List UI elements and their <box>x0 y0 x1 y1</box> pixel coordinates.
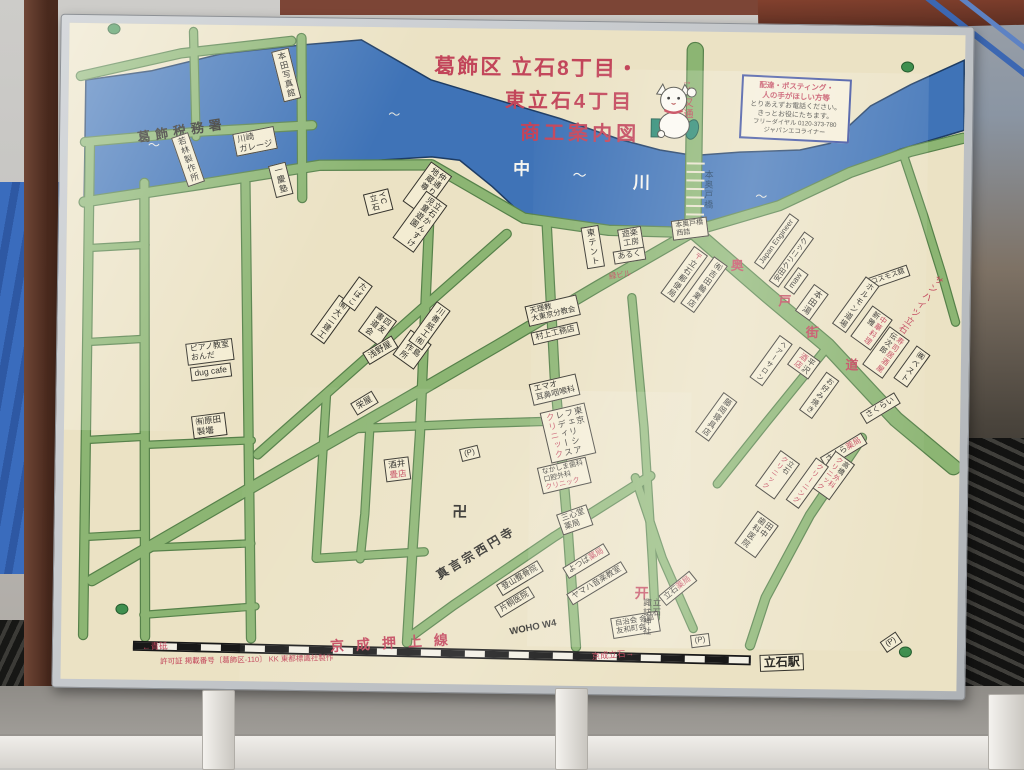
river-name: 中 <box>513 159 530 178</box>
bridge-name: 本奥戸橋 <box>703 170 714 210</box>
poi: YC 立石 <box>363 188 394 216</box>
parking-label: (P) <box>459 445 480 462</box>
poi: 田中 歯科医院 <box>734 511 778 559</box>
photo-background: 葛飾区 立石8丁目・東立石4丁目商工案内図中〜川〜〜〜〜本奥戸橋↑柴又通り奥戸街… <box>0 0 1024 768</box>
poi-sun-heights: サンハイツ立石 <box>896 273 945 336</box>
notice-box: 配達・ポスティング・ 人の手がほしい方等 とりあえずお電話ください。 きっとお役… <box>739 74 852 143</box>
poi-temple: 真言宗西円寺 <box>434 524 518 582</box>
fence-bottom-rail <box>0 736 1024 768</box>
railway-dir-right: 京成立石→ <box>591 649 634 662</box>
poi-midori-bldg: 緑ビル <box>608 270 632 282</box>
poi: 栄屋 <box>350 391 378 416</box>
road-name-okudo-kaido: 街 <box>806 326 819 341</box>
poi: 立石薬局 <box>658 571 697 606</box>
poi-temple-manji: 卍 <box>452 505 467 522</box>
map-face: 葛飾区 立石8丁目・東立石4丁目商工案内図中〜川〜〜〜〜本奥戸橋↑柴又通り奥戸街… <box>60 23 965 691</box>
poi-shrine: 立石 諏訪神社 <box>642 598 662 636</box>
road-name-okudo-kaido: 奥 <box>731 259 744 274</box>
poi: 平沢 酒店 <box>787 347 821 380</box>
poi: 本田写真館 <box>271 48 301 102</box>
poi: お好み焼き <box>799 372 839 419</box>
poi: 立石かんすけ 児童遊園 <box>392 191 447 253</box>
poi: 一慶塾 <box>268 162 293 198</box>
parking-label: (P) <box>690 633 710 648</box>
poi: ㈲原田 製壜 <box>191 412 227 439</box>
poi: 酒井 畳店 <box>384 456 412 482</box>
poi: 村上工務店 <box>530 322 580 346</box>
road-name-okudo-kaido: 道 <box>845 358 858 373</box>
cord-tie <box>899 646 912 657</box>
poi: 藤岡寝具店 <box>695 392 737 442</box>
map-board: 葛飾区 立石8丁目・東立石4丁目商工案内図中〜川〜〜〜〜本奥戸橋↑柴又通り奥戸街… <box>51 14 974 701</box>
map-title-line-1: 葛飾区 立石8丁目・ <box>434 55 640 81</box>
maneki-neko-icon <box>650 81 703 147</box>
poi: 本田湯 <box>795 284 828 321</box>
river-wave: 〜 <box>755 191 767 205</box>
poi: 川崎 ガレージ <box>232 126 278 157</box>
white-post <box>555 688 588 770</box>
poi: 東京 フェリシア レディース クリニック <box>540 402 597 463</box>
river-tilde: 〜 <box>572 168 586 184</box>
cord-tie <box>107 23 120 34</box>
cord-tie <box>115 603 128 614</box>
river-wave: 〜 <box>388 109 400 123</box>
railway-dir-left: ←青砥 <box>142 642 168 652</box>
poi: ピアノ教室 おんだ <box>185 338 235 366</box>
river-name: 川 <box>633 173 650 192</box>
railway-name: 京成押上線 <box>330 632 461 655</box>
white-post <box>988 694 1024 770</box>
poi: エマオ 耳鼻咽喉科 <box>529 373 581 405</box>
cord-tie <box>901 61 914 72</box>
station-tateishi: 立石駅 <box>759 653 804 672</box>
poi: 東テント <box>581 225 605 269</box>
road-name-woho: WOHO W4 <box>509 618 558 638</box>
map-title-line-3: 商工案内図 <box>520 122 640 146</box>
poi: あるく <box>613 247 647 265</box>
poi: dug cafe <box>190 363 232 382</box>
white-post <box>202 690 235 770</box>
poi: さくらい <box>860 392 901 424</box>
poi: 若林製作所 <box>171 132 204 186</box>
poi: なかしま歯科 口腔外科 クリニック <box>537 457 592 495</box>
poi: 本奥戸橋 西詰 <box>671 216 709 240</box>
poi: 三心堂 薬局 <box>556 504 593 535</box>
map-title-line-2: 東立石4丁目 <box>505 90 634 114</box>
permit-note: 許可証 掲載番号〔葛飾区-110〕 KK 東都標識社製作 <box>160 654 333 666</box>
road-name-okudo-kaido: 戸 <box>778 294 791 309</box>
poi: ヘアーサロン <box>749 335 792 386</box>
